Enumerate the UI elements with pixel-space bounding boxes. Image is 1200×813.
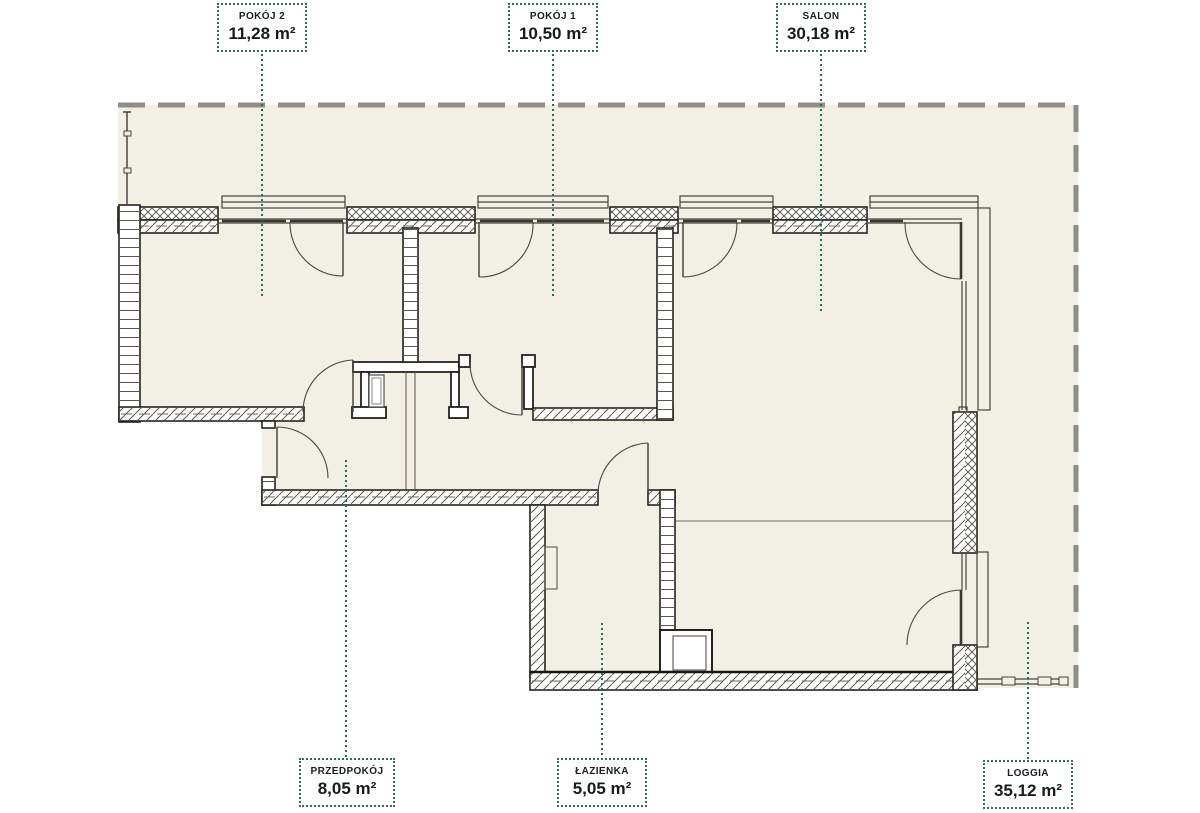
room-label-pokoj2: POKÓJ 2 11,28 m² <box>217 3 307 52</box>
floor-plan-drawing <box>0 0 1200 813</box>
room-name: POKÓJ 1 <box>512 12 594 22</box>
room-label-przedpokoj: PRZEDPOKÓJ 8,05 m² <box>299 758 395 807</box>
room-area: 30,18 m² <box>780 24 862 44</box>
room-area: 5,05 m² <box>561 779 643 799</box>
room-label-lazienka: ŁAZIENKA 5,05 m² <box>557 758 647 807</box>
room-area: 11,28 m² <box>221 24 303 44</box>
room-label-pokoj1: POKÓJ 1 10,50 m² <box>508 3 598 52</box>
exterior-wall-bottom <box>530 672 977 690</box>
wall-salon-right-bottom <box>953 645 977 690</box>
shaft-box <box>660 630 712 676</box>
wall-divider-pokoj2-pokoj1 <box>403 228 418 362</box>
room-name: SALON <box>780 12 862 22</box>
room-area: 8,05 m² <box>303 779 391 799</box>
exterior-wall-left <box>119 205 140 422</box>
wall-pokoj2-bottom <box>119 407 304 421</box>
room-name: PRZEDPOKÓJ <box>303 767 391 777</box>
floor-area <box>118 105 1078 688</box>
room-name: LOGGIA <box>987 769 1069 779</box>
room-label-salon: SALON 30,18 m² <box>776 3 866 52</box>
duct-shaft <box>369 375 384 407</box>
room-name: ŁAZIENKA <box>561 767 643 777</box>
room-name: POKÓJ 2 <box>221 12 303 22</box>
room-area: 35,12 m² <box>987 781 1069 801</box>
wall-salon-right-mid <box>953 412 977 553</box>
floor-plan-page: POKÓJ 2 11,28 m² POKÓJ 1 10,50 m² SALON … <box>0 0 1200 813</box>
wall-divider-pokoj1-salon <box>657 228 673 420</box>
room-area: 10,50 m² <box>512 24 594 44</box>
room-label-loggia: LOGGIA 35,12 m² <box>983 760 1073 809</box>
